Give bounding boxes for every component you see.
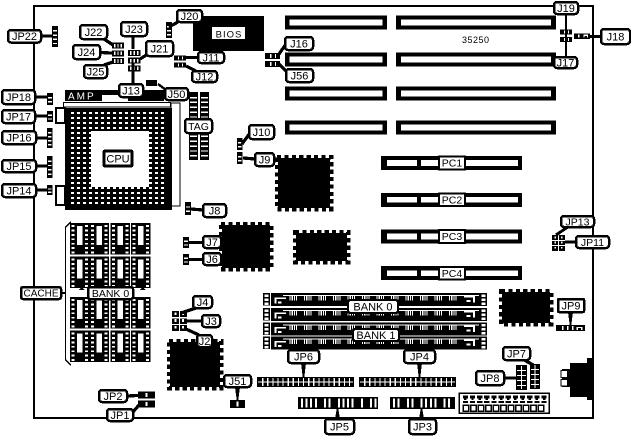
svg-text:JP13: JP13 — [566, 216, 590, 228]
svg-text:JP2: JP2 — [104, 391, 123, 403]
svg-text:J16: J16 — [290, 39, 308, 51]
svg-text:J6: J6 — [206, 254, 218, 266]
svg-text:PC2: PC2 — [442, 195, 463, 207]
svg-text:PC4: PC4 — [442, 268, 463, 280]
svg-text:J23: J23 — [125, 24, 143, 36]
svg-text:J19: J19 — [557, 3, 575, 15]
svg-text:JP17: JP17 — [6, 112, 31, 124]
svg-text:35250: 35250 — [462, 35, 490, 45]
svg-text:JP3: JP3 — [413, 422, 432, 434]
svg-text:PC3: PC3 — [442, 231, 463, 243]
svg-text:J24: J24 — [78, 47, 96, 59]
svg-text:J2: J2 — [199, 336, 211, 348]
svg-text:JP16: JP16 — [6, 133, 31, 145]
svg-text:J8: J8 — [209, 206, 221, 218]
svg-text:JP5: JP5 — [330, 422, 349, 434]
svg-text:J22: J22 — [85, 27, 103, 39]
svg-text:J20: J20 — [181, 11, 199, 23]
svg-text:J25: J25 — [87, 67, 105, 79]
svg-text:BANK 0: BANK 0 — [353, 302, 392, 314]
svg-text:J12: J12 — [196, 72, 214, 84]
svg-text:BIOS: BIOS — [216, 29, 243, 40]
svg-text:CACHE: CACHE — [23, 289, 58, 300]
svg-text:JP4: JP4 — [410, 352, 429, 364]
svg-text:J50: J50 — [168, 89, 186, 101]
svg-text:CPU: CPU — [106, 154, 129, 166]
svg-text:J21: J21 — [151, 44, 169, 56]
svg-text:J4: J4 — [197, 297, 209, 309]
svg-text:J17: J17 — [557, 58, 575, 70]
svg-text:JP7: JP7 — [507, 349, 526, 361]
svg-text:J7: J7 — [206, 237, 218, 249]
svg-text:J18: J18 — [607, 32, 625, 44]
svg-text:J13: J13 — [122, 86, 140, 98]
svg-text:AMP: AMP — [68, 92, 96, 103]
svg-text:JP14: JP14 — [6, 186, 31, 198]
svg-text:J9: J9 — [259, 155, 271, 167]
svg-text:BANK 1: BANK 1 — [356, 330, 395, 342]
svg-text:JP8: JP8 — [481, 373, 500, 385]
svg-text:TAG: TAG — [188, 121, 209, 133]
svg-text:JP6: JP6 — [294, 352, 313, 364]
svg-text:JP22: JP22 — [12, 31, 37, 43]
svg-text:PC1: PC1 — [442, 158, 463, 170]
svg-text:JP11: JP11 — [581, 237, 604, 249]
svg-text:JP1: JP1 — [111, 410, 130, 422]
svg-text:J56: J56 — [291, 71, 309, 83]
svg-text:J51: J51 — [229, 376, 247, 388]
svg-text:J3: J3 — [205, 316, 217, 328]
svg-text:JP9: JP9 — [562, 301, 581, 313]
svg-text:J11: J11 — [203, 53, 220, 65]
svg-text:JP15: JP15 — [6, 161, 31, 173]
svg-text:JP18: JP18 — [6, 92, 31, 104]
svg-text:BANK 0: BANK 0 — [92, 288, 130, 300]
svg-text:J10: J10 — [253, 127, 271, 139]
